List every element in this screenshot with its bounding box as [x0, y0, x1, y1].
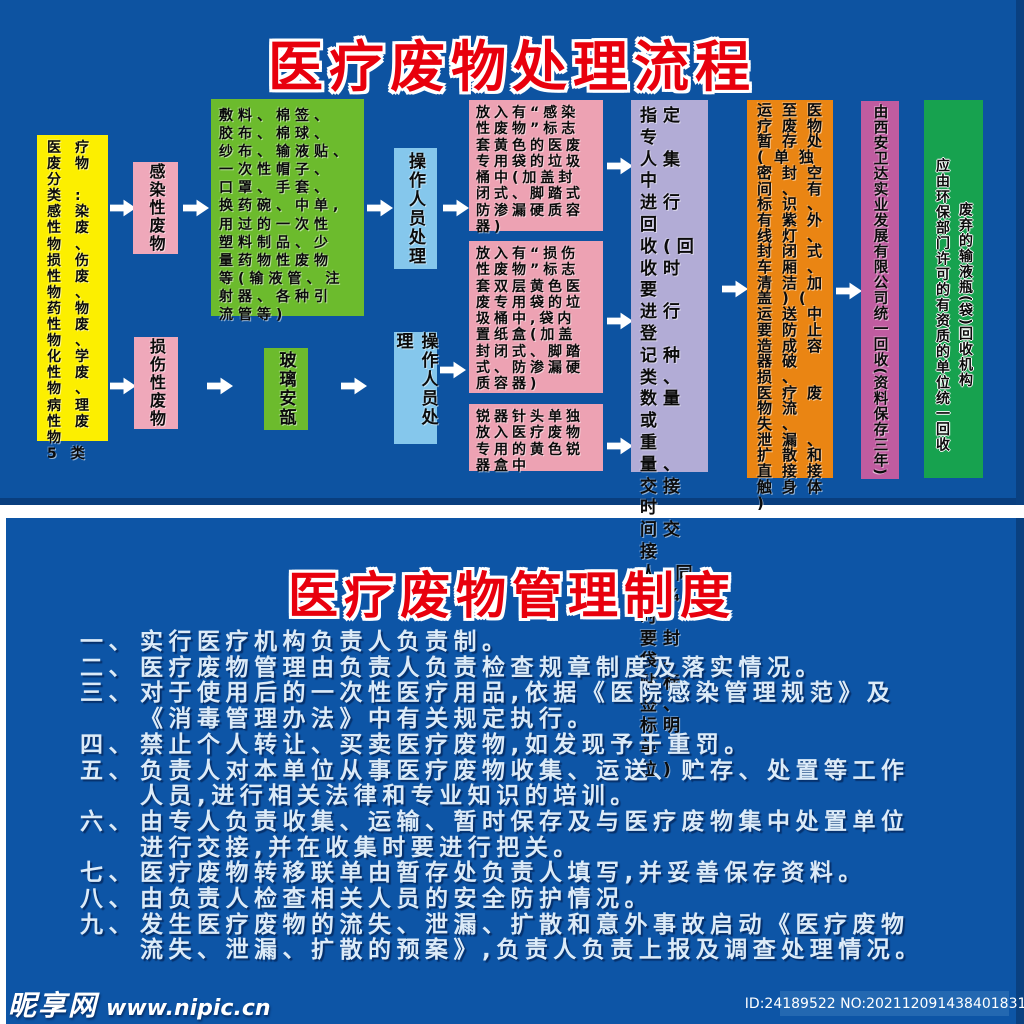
sharp-waste-label: 损伤性废物	[144, 338, 168, 428]
rule-text: 由负责人检查相关人员的安全防护情况。	[140, 887, 653, 913]
rule-number: 一、	[80, 630, 140, 656]
recycler-org-text: 废弃的输液瓶(袋)回收机构	[955, 202, 975, 478]
waste-categories-box: 医疗 废物 分类: 感染 性废 物、 损伤 性废 物、 药物 性废 物、 化学 …	[37, 135, 108, 441]
infectious-waste-label: 感染性废物	[144, 163, 168, 253]
process-flow-title: 医疗废物处理流程	[0, 22, 1024, 102]
rule-text: 医疗废物管理由负责人负责检查规章制度及落实情况。	[140, 656, 824, 682]
operator-handling-box-2: 操作人员处理	[391, 332, 441, 444]
management-title: 医疗废物管理制度	[0, 556, 1024, 628]
management-rules-list: 一、 实行医疗机构负责人负责制。 二、 医疗废物管理由负责人负责检查规章制度及落…	[80, 630, 1010, 964]
image-id-badge: ID:24189522 NO:20211209143840183104	[780, 991, 1009, 1016]
sharps-container-box: 锐器针头单独 放入医疗废物 专用的黄色锐 器盒中	[469, 404, 603, 471]
rule-text: 实行医疗机构负责人负责制。	[140, 630, 511, 656]
rule-item: 八、 由负责人检查相关人员的安全防护情况。	[80, 887, 1010, 913]
rule-number: 二、	[80, 656, 140, 682]
rule-number: 五、	[80, 759, 140, 810]
rule-item: 四、 禁止个人转让、买卖医疗废物,如发现予于重罚。	[80, 733, 1010, 759]
rule-number: 九、	[80, 913, 140, 964]
recycler-box: 应由环保部门许可的有资质的单位统一回收 废弃的输液瓶(袋)回收机构	[924, 100, 983, 478]
panel-edge-line	[0, 498, 1024, 505]
recycling-company-box: 由西安卫达实业发展有限公司统一回收(资料保存三年)	[870, 104, 891, 476]
glass-ampoule-box: 玻璃安瓿	[274, 351, 299, 427]
collection-box: 指定专 人集中 进行回 收(回 收时要 进行登 记种类、 数量或 重量、 交接时…	[631, 100, 708, 472]
rule-text: 由专人负责收集、运输、暂时保存及与医疗废物集中处置单位 进行交接,并在收集时要进…	[140, 810, 910, 861]
rule-number: 六、	[80, 810, 140, 861]
rule-item: 七、 医疗废物转移联单由暂存处负责人填写,并妥善保存资料。	[80, 861, 1010, 887]
rule-text: 对于使用后的一次性医疗用品,依据《医院感染管理规范》及 《消毒管理办法》中有关规…	[140, 681, 895, 732]
rule-number: 七、	[80, 861, 140, 887]
recycler-note-text: 应由环保部门许可的有资质的单位统一回收	[932, 158, 952, 478]
rule-text: 禁止个人转让、买卖医疗废物,如发现予于重罚。	[140, 733, 753, 759]
operator-handling-box-1: 操作人员处理	[403, 152, 428, 266]
rule-number: 八、	[80, 887, 140, 913]
transport-storage-box: 运至医 疗废物 暂存处 (单独 密封空 间、有 标识、 有紫外 线灯、 封闭式 …	[747, 100, 833, 478]
rule-number: 三、	[80, 681, 140, 732]
rule-item: 五、 负责人对本单位从事医疗废物收集、运送、贮存、处置等工作 人员,进行相关法律…	[80, 759, 1010, 810]
infectious-items-box: 敷料、棉签、 胶布、棉球、 纱布、输液贴、 一次性帽子、 口罩、手套、 换药碗、…	[211, 99, 364, 316]
nipic-watermark: 昵享网www.nipic.cn	[8, 984, 271, 1024]
rule-item: 三、 对于使用后的一次性医疗用品,依据《医院感染管理规范》及 《消毒管理办法》中…	[80, 681, 1010, 732]
rule-text: 医疗废物转移联单由暂存处负责人填写,并妥善保存资料。	[140, 861, 867, 887]
infectious-bag-box: 放入有“感染 性废物”标志 套黄色的医废 专用袋的垃圾 桶中(加盖封 闭式、脚踏…	[469, 100, 603, 231]
rule-item: 九、 发生医疗废物的流失、泄漏、扩散和意外事故启动《医疗废物 流失、泄漏、扩散的…	[80, 913, 1010, 964]
rule-number: 四、	[80, 733, 140, 759]
rule-text: 发生医疗废物的流失、泄漏、扩散和意外事故启动《医疗废物 流失、泄漏、扩散的预案》…	[140, 913, 924, 964]
nipic-site-url: www.nipic.cn	[106, 996, 271, 1021]
rule-text: 负责人对本单位从事医疗废物收集、运送、贮存、处置等工作 人员,进行相关法律和专业…	[140, 759, 910, 810]
panel-divider	[0, 505, 1024, 518]
rule-item: 六、 由专人负责收集、运输、暂时保存及与医疗废物集中处置单位 进行交接,并在收集…	[80, 810, 1010, 861]
rule-item: 一、 实行医疗机构负责人负责制。	[80, 630, 1010, 656]
sharp-bag-box: 放入有“损伤 性废物”标志 套双层黄色医 废专用袋的垃 圾桶中,袋内 置纸盒(加…	[469, 241, 603, 393]
rule-item: 二、 医疗废物管理由负责人负责检查规章制度及落实情况。	[80, 656, 1010, 682]
nipic-site-name: 昵享网	[8, 989, 98, 1022]
